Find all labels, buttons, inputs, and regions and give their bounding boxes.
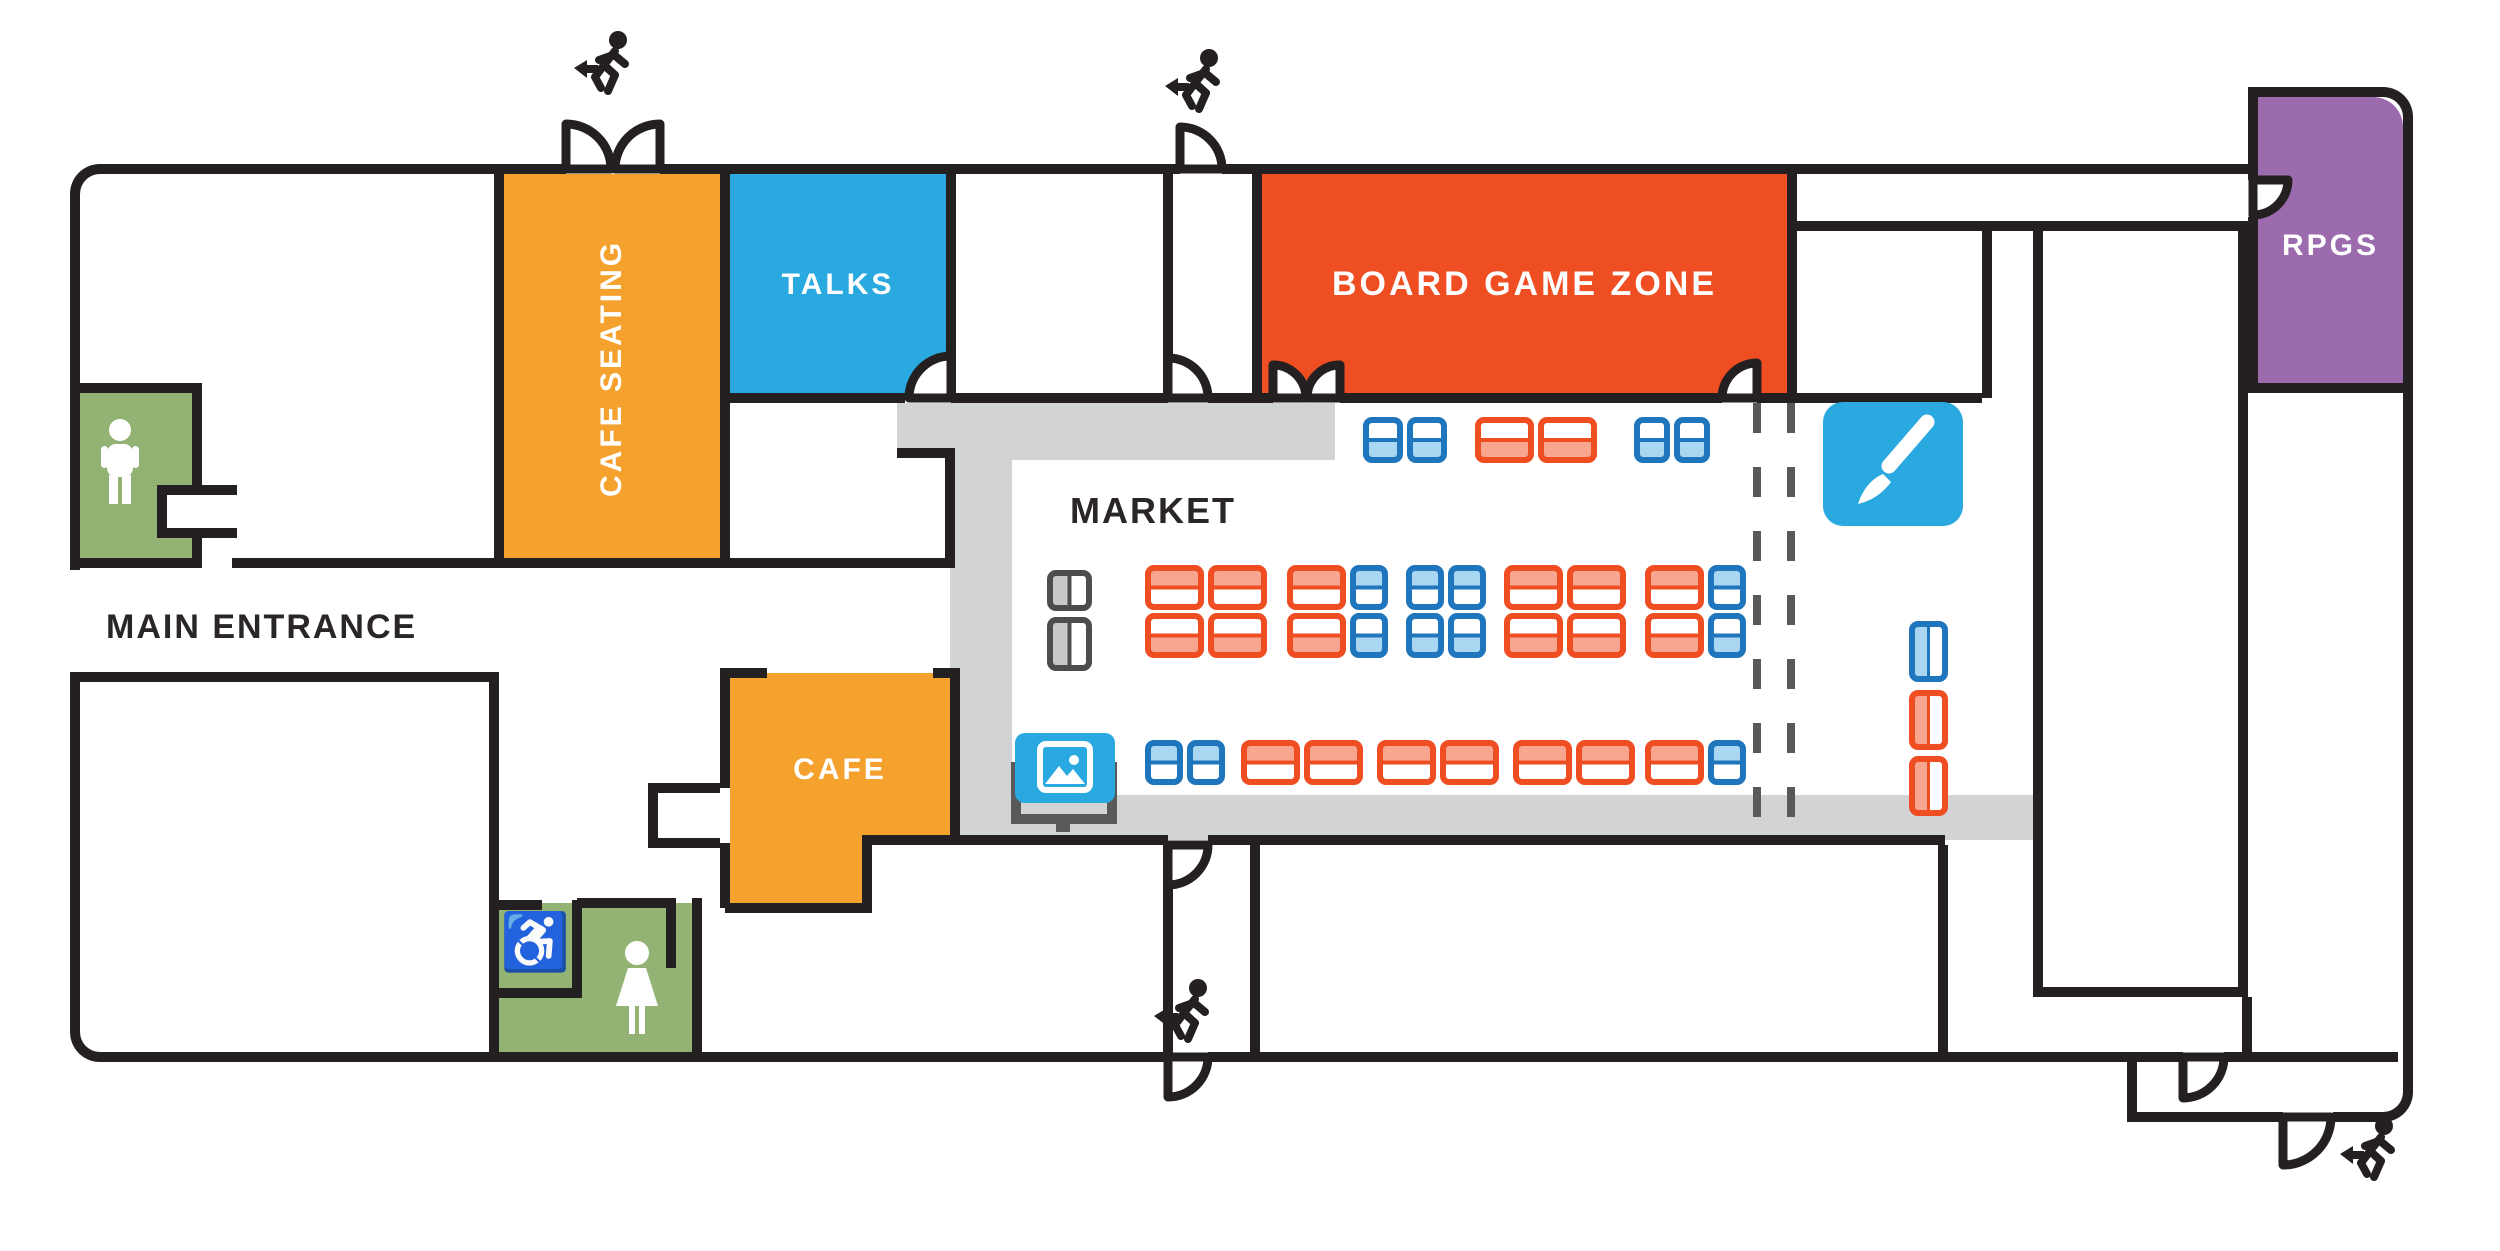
door-arc-icon <box>1168 845 1208 885</box>
label-market: MARKET <box>1070 490 1236 532</box>
door-arc-icon <box>2183 1057 2224 1098</box>
male-restroom-icon <box>101 419 139 504</box>
label-rpgs: RPGS <box>2258 226 2403 266</box>
exit-runner-icon <box>574 31 627 91</box>
door-arc-icon <box>615 124 660 169</box>
door-arc-icon <box>2283 1117 2331 1165</box>
door-arc-icon <box>2253 180 2288 215</box>
label-cafe: CAFE <box>730 750 950 790</box>
door-arc-icon <box>566 124 611 169</box>
paintbrush-icon <box>1823 402 1963 526</box>
female-restroom-icon <box>616 941 658 1034</box>
exit-runner-icon <box>2340 1117 2393 1177</box>
door-arc-icon <box>1168 1057 1208 1097</box>
door-arc-icon <box>909 356 951 398</box>
label-board-game-zone: BOARD GAME ZONE <box>1262 261 1787 307</box>
wheelchair-icon: ♿ <box>500 914 570 970</box>
door-arc-icon <box>1273 365 1306 398</box>
exit-runner-icon <box>1165 49 1218 109</box>
label-main-entrance: MAIN ENTRANCE <box>106 608 417 647</box>
exit-runner-icon <box>1154 979 1207 1039</box>
door-arc-icon <box>1168 358 1208 398</box>
label-talks: TALKS <box>730 263 946 307</box>
picture-screen-icon <box>1015 733 1115 803</box>
floor-plan: CAFE SEATING TALKS BOARD GAME ZONE RPGS … <box>0 0 2500 1251</box>
label-cafe-seating: CAFE SEATING <box>582 198 642 538</box>
door-arc-icon <box>1722 363 1757 398</box>
door-arc-icon <box>1307 365 1340 398</box>
door-arc-icon <box>1180 127 1222 169</box>
